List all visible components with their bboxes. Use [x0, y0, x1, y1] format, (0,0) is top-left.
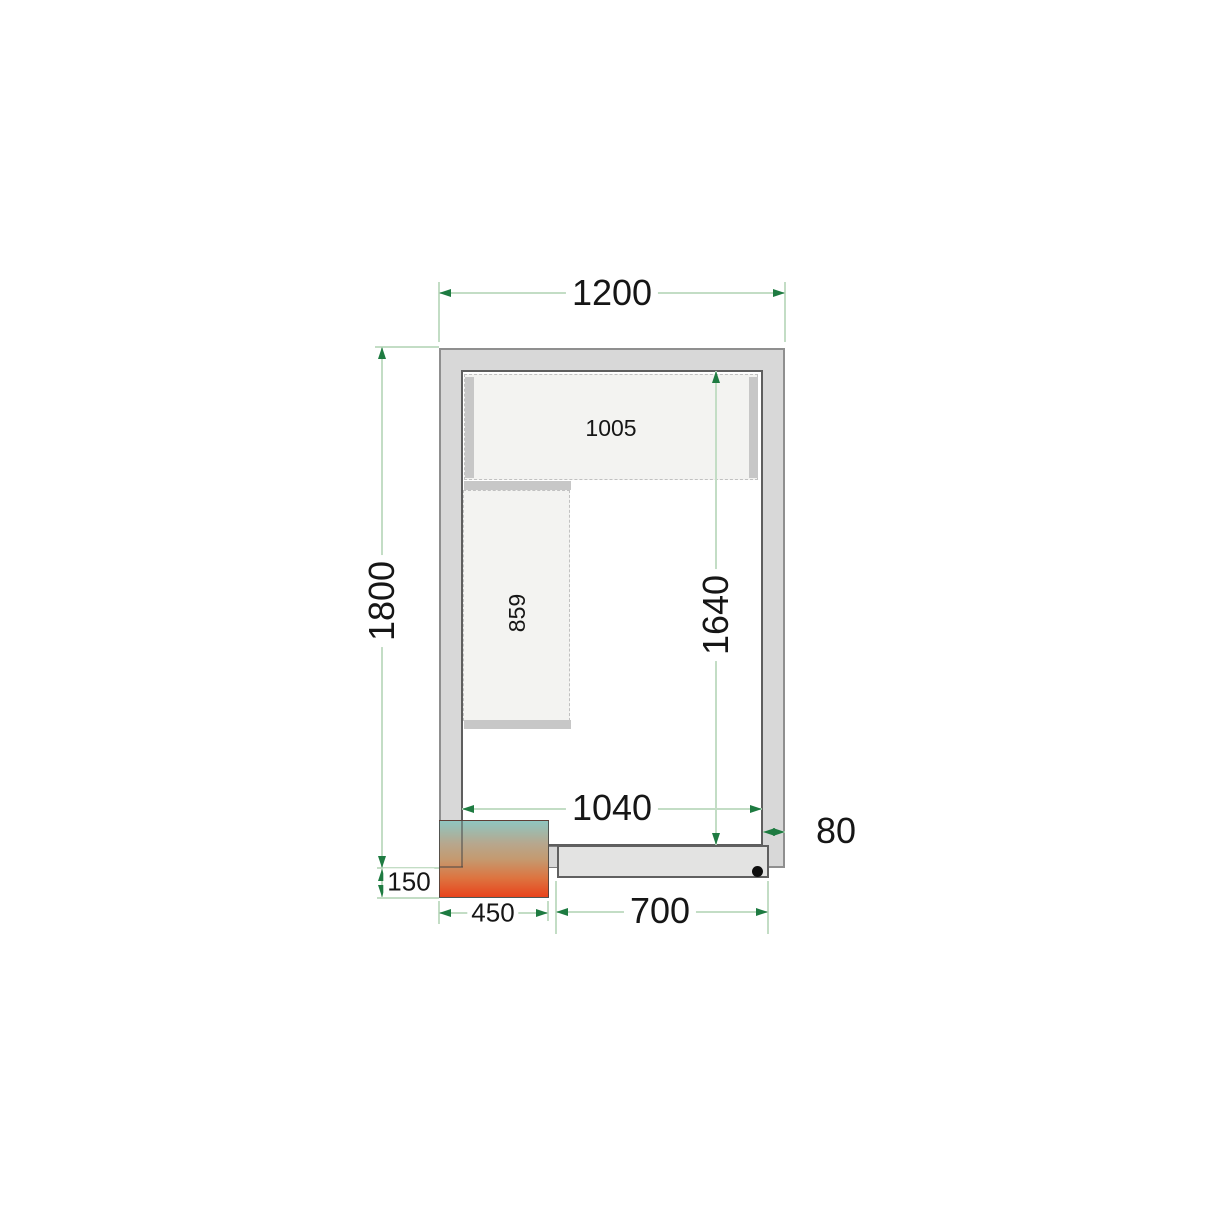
dim-overhang-ext-bottom — [377, 897, 439, 899]
shelf-bracket-bottom — [464, 720, 571, 729]
dim-door-width-label: 700 — [624, 892, 696, 930]
dim-outer-depth-label: 1800 — [363, 555, 401, 647]
shelf-bracket-middle — [464, 481, 571, 490]
dim-wall-thickness-arrow-right — [773, 828, 785, 836]
shelf-bracket-right — [749, 377, 758, 478]
dim-unit-width-label: 450 — [467, 899, 518, 926]
dim-wall-thickness-label: 80 — [810, 812, 862, 850]
dim-outer-width-label: 1200 — [566, 274, 658, 312]
top-shelf-label: 1005 — [585, 416, 636, 440]
left-shelf-label: 859 — [505, 594, 529, 632]
dim-inner-depth-label: 1640 — [697, 569, 735, 661]
dim-inner-width-label: 1040 — [566, 789, 658, 827]
dim-inner-depth-arrow-bottom — [712, 833, 720, 845]
dim-unit-width-arrow-left — [439, 909, 451, 917]
dim-door-width-arrow-left — [556, 908, 568, 916]
dim-outer-width-arrow-right — [773, 289, 785, 297]
dim-outer-width-arrow-left — [439, 289, 451, 297]
door-leaf — [557, 845, 769, 878]
dim-inner-width-arrow-right — [750, 805, 762, 813]
wall-edge-through-unit-vertical — [461, 820, 463, 867]
dim-inner-width-arrow-left — [462, 805, 474, 813]
dim-outer-depth-arrow-bottom — [378, 856, 386, 868]
wall-edge-through-unit-horizontal — [439, 866, 463, 868]
shelf-bracket-left — [465, 377, 474, 478]
door-hinge-dot — [752, 866, 763, 877]
dim-overhang-label: 150 — [383, 868, 434, 895]
floorplan-canvas: 1005 859 1200 1800 150 1640 1040 450 700 — [0, 0, 1214, 1214]
cooling-unit — [439, 820, 549, 898]
dim-inner-depth-arrow-top — [712, 371, 720, 383]
dim-unit-width-arrow-right — [536, 909, 548, 917]
dim-outer-depth-arrow-top — [378, 347, 386, 359]
dim-door-width-arrow-right — [756, 908, 768, 916]
